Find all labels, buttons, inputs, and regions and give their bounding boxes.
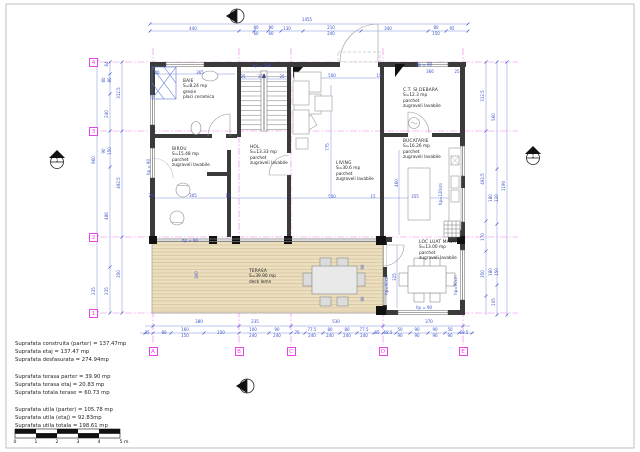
room-label-living: LIVINGS=30.6 mpparchetzugraveli lavabile bbox=[336, 161, 374, 182]
dimension-label: 70 bbox=[294, 331, 299, 335]
dimension-label: 50 bbox=[397, 328, 402, 332]
dimension-label: 80 bbox=[102, 77, 106, 82]
dimension-label: 486 bbox=[105, 212, 109, 220]
dimension-label: 240 bbox=[360, 334, 368, 338]
dimension-label: 150 bbox=[432, 32, 440, 36]
section-number-right: 1 bbox=[532, 154, 535, 159]
summary-line: Suprafata utila (parter) = 105.78 mp bbox=[15, 406, 126, 414]
dimension-label: 80 bbox=[344, 328, 349, 332]
dimension-label: 80 bbox=[268, 26, 273, 30]
parapet-height-label: hp = 90 bbox=[416, 306, 432, 310]
grid-bubble-D: D bbox=[379, 347, 388, 356]
dimension-label: 35 bbox=[144, 331, 149, 335]
dimension-label: 60 bbox=[268, 32, 273, 36]
dimension-label: 210 bbox=[258, 75, 266, 79]
dimension-label: 80 bbox=[433, 26, 438, 30]
dimension-label: 1190 bbox=[502, 181, 506, 191]
dimension-label: 500 bbox=[328, 195, 336, 199]
dimension-label: 235 bbox=[251, 320, 259, 324]
dimension-label: 235 bbox=[92, 287, 96, 295]
grid-bubble-1: 1 bbox=[89, 309, 98, 318]
dimension-label: 80 bbox=[161, 331, 166, 335]
dimension-label: 240 bbox=[105, 110, 109, 118]
dimension-label: 90 bbox=[432, 328, 437, 332]
grid-bubble-2: 2 bbox=[89, 233, 98, 242]
dimension-label: 77.5 bbox=[308, 328, 317, 332]
scale-label: 2 bbox=[56, 440, 59, 445]
dimension-label: 312.5 bbox=[117, 87, 121, 98]
grid-bubble-B: B bbox=[235, 347, 244, 356]
parapet-height-label: hp=90cm bbox=[385, 275, 389, 295]
summary-line: Suprafata construita (parter) = 137.47mp bbox=[15, 340, 126, 348]
dimension-label: 90 bbox=[361, 296, 365, 301]
dimension-label: 170 bbox=[481, 233, 485, 241]
dimension-label: 90 bbox=[274, 328, 279, 332]
scale-label: 1 bbox=[35, 440, 38, 445]
scale-label: 5 m bbox=[120, 440, 129, 445]
section-number-left: 1 bbox=[56, 158, 59, 163]
dimension-label: 95 bbox=[449, 27, 454, 31]
dimension-label: 240 bbox=[273, 334, 281, 338]
floor-plan-sheet: 1455440806080601302102403408015095380235… bbox=[0, 0, 640, 452]
dimension-label: 68.5 bbox=[460, 331, 469, 335]
dimension-label: 60 bbox=[253, 32, 258, 36]
dimension-label: 120 bbox=[495, 194, 499, 202]
dimension-label: 20 bbox=[148, 194, 153, 198]
dimension-label: 370 bbox=[425, 320, 433, 324]
dimension-label: 460 bbox=[395, 179, 399, 187]
dimension-label: 150 bbox=[108, 147, 112, 155]
dimension-label: 150 bbox=[495, 268, 499, 276]
dimension-label: 366 bbox=[426, 70, 434, 74]
grid-bubble-A: A bbox=[149, 347, 158, 356]
dimension-label: 90 bbox=[432, 334, 437, 338]
dimension-label: 15 bbox=[370, 195, 375, 199]
dimension-label: 355 bbox=[411, 195, 419, 199]
summary-line: Suprafata terasa etaj = 20.83 mp bbox=[15, 381, 126, 389]
dimension-label: 300 bbox=[195, 271, 199, 279]
dimension-label: 340 bbox=[384, 27, 392, 31]
room-label-birou: BIROUS=15.48 mpparchetzugraveli lavabile bbox=[172, 147, 210, 168]
summary-line: Suprafata terasa parter = 39.90 mp bbox=[15, 373, 126, 381]
dimension-label: 80 bbox=[327, 328, 332, 332]
summary-line: Suprafata totala terase = 60.73 mp bbox=[15, 389, 126, 397]
dimension-label: 500 bbox=[328, 74, 336, 78]
dimension-label: 1455 bbox=[302, 18, 312, 22]
room-label-baie: BAIES=8.24 mpgresieplaci ceramica bbox=[183, 79, 214, 100]
parapet-height-label: hp = 90 bbox=[416, 63, 432, 67]
dimension-label: 50 bbox=[447, 328, 452, 332]
dimension-label: 350 bbox=[117, 270, 121, 278]
dimension-label: 440 bbox=[189, 27, 197, 31]
dimension-label: 180 bbox=[489, 194, 493, 202]
dimension-label: 560 bbox=[492, 113, 496, 121]
dimension-label: 492.5 bbox=[117, 177, 121, 188]
dimension-label: 960 bbox=[92, 156, 96, 164]
summary-line: Suprafata etaj = 137.47 mp bbox=[15, 348, 126, 356]
summary-line: Suprafata utila totala = 198.61 mp bbox=[15, 422, 126, 430]
dimension-label: 25 bbox=[279, 75, 284, 79]
scale-label: 3 bbox=[77, 440, 80, 445]
grid-bubble-4: 4 bbox=[89, 58, 98, 67]
dimension-label: 25 bbox=[240, 75, 245, 79]
dimension-label: 90 bbox=[414, 334, 419, 338]
parapet-height-label: hp=90cm bbox=[454, 275, 458, 295]
dimension-label: 530 bbox=[332, 320, 340, 324]
dimension-label: 775 bbox=[326, 143, 330, 151]
dimension-label: 105 bbox=[492, 298, 496, 306]
dimension-label: 380 bbox=[195, 320, 203, 324]
dimension-label: 365 bbox=[196, 71, 204, 75]
dimension-label: 160 bbox=[181, 328, 189, 332]
grid-bubble-E: E bbox=[459, 347, 468, 356]
dimension-label: 305 bbox=[189, 194, 197, 198]
dimension-label: 130 bbox=[283, 27, 291, 31]
dimension-label: 350 bbox=[481, 270, 485, 278]
dimension-label: 312.5 bbox=[481, 90, 485, 101]
parapet-height-label: hp = 180 bbox=[253, 64, 272, 68]
dimension-label: 235 bbox=[105, 287, 109, 295]
parapet-height-label: hp=120cm bbox=[439, 183, 443, 205]
grid-bubble-C: C bbox=[287, 347, 296, 356]
dimension-label: 90 bbox=[447, 334, 452, 338]
room-label-hol: HOLS=13.33 mpparchetzugraveli lavabile bbox=[250, 145, 288, 166]
dimension-label: 240 bbox=[326, 334, 334, 338]
dimension-label: 80 bbox=[253, 26, 258, 30]
dimension-label: 150 bbox=[217, 331, 225, 335]
dimension-label: 210 bbox=[327, 26, 335, 30]
dimension-label: 15 bbox=[225, 194, 230, 198]
summary-line: Suprafata desfasurata = 274.94mp bbox=[15, 356, 126, 364]
dimension-label: 64 bbox=[105, 61, 109, 66]
dimension-label: 90 bbox=[414, 328, 419, 332]
dimension-label: 90 bbox=[397, 334, 402, 338]
dimension-label: 68.5 bbox=[384, 331, 393, 335]
dimension-label: 90 bbox=[361, 264, 365, 269]
room-label-bucatarie: BUCATARIES=16.26 mpparchetzugraveli lava… bbox=[403, 139, 441, 160]
room-label-ct-debara: C.T. SI DEBARAS=12.3 mpparchetzugraveli … bbox=[403, 88, 441, 109]
dimension-label: 25 bbox=[454, 70, 459, 74]
dimension-label: 20 bbox=[154, 71, 159, 75]
grid-bubble-3: 3 bbox=[89, 127, 98, 136]
dimension-label: 240 bbox=[308, 334, 316, 338]
dimension-label: 15 bbox=[376, 74, 381, 78]
dimension-label: 240 bbox=[327, 32, 335, 36]
dimension-label: 150 bbox=[181, 334, 189, 338]
dimension-label: 492.5 bbox=[481, 173, 485, 184]
dimension-label: 100 bbox=[249, 328, 257, 332]
dimension-label: 80 bbox=[108, 77, 112, 82]
summary-line: Suprafata utila (etaj) = 92.83mp bbox=[15, 414, 126, 422]
scale-label: 4 bbox=[98, 440, 101, 445]
parapet-height-label: hp = 90 bbox=[182, 239, 198, 243]
parapet-height-label: hp = 90 bbox=[147, 159, 151, 175]
dimension-label: 325 bbox=[393, 273, 397, 281]
room-label-loc-luat-masa: LOC LUAT MASAS=13.00 mpparchetzugraveli … bbox=[419, 240, 457, 261]
dimension-label: 35 bbox=[374, 331, 379, 335]
scale-label: 0 bbox=[14, 440, 17, 445]
dimension-label: 240 bbox=[343, 334, 351, 338]
area-summary: Suprafata construita (parter) = 137.47mp… bbox=[15, 340, 126, 430]
room-label-terasa: TERASAS=39.90 mpdeck lemn bbox=[249, 269, 276, 285]
dimension-label: 180 bbox=[489, 268, 493, 276]
dimension-label: 90 bbox=[102, 148, 106, 153]
dimension-label: 77.5 bbox=[360, 328, 369, 332]
dimension-label: 240 bbox=[249, 334, 257, 338]
